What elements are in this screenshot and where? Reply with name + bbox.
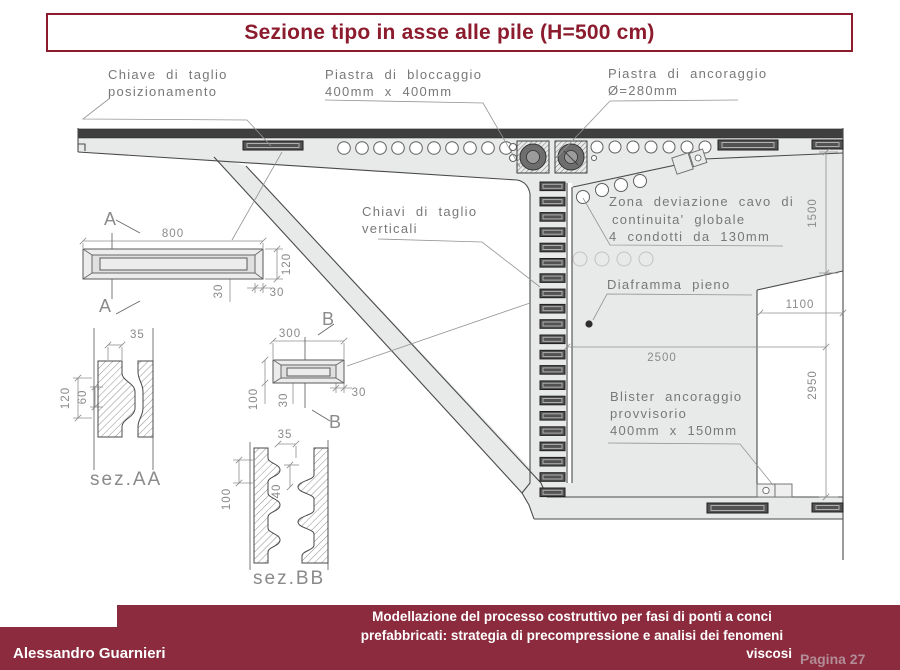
label-diaframma: Diaframma pieno — [607, 277, 731, 292]
dim-300: 300 — [279, 328, 301, 340]
page-number: Pagina 27 — [800, 651, 865, 667]
label-piastra-ancoraggio: Ø=280mm — [608, 83, 678, 98]
section-mark-b: B — [329, 412, 341, 432]
label-chiavi-verticali: Chiavi di taglio — [362, 204, 477, 219]
vertical-shear-keys — [540, 182, 565, 497]
dim-800: 800 — [162, 228, 184, 240]
section-BB-profiles — [250, 440, 328, 570]
label-chiave-taglio: posizionamento — [108, 84, 217, 99]
label-zona-deviazione: continuita' globale — [612, 212, 745, 227]
dim-120: 120 — [60, 387, 72, 409]
dim-2950: 2950 — [807, 370, 819, 400]
footer-author: Alessandro Guarnieri — [13, 645, 166, 662]
label-piastra-bloccaggio: Piastra di bloccaggio — [325, 67, 482, 82]
dim-1100: 1100 — [786, 299, 815, 311]
label-blister: Blister ancoraggio — [610, 389, 742, 404]
footer-title-line: viscosi — [352, 645, 792, 664]
dim-35: 35 — [278, 429, 293, 441]
dim-30: 30 — [278, 393, 290, 408]
dim-2500: 2500 — [647, 352, 677, 364]
label-chiave-taglio: Chiave di taglio — [108, 67, 228, 82]
footer-title-line: Modellazione del processo costruttivo pe… — [352, 608, 792, 627]
label-chiavi-verticali: verticali — [362, 221, 418, 236]
technical-drawing: Chiave di taglio posizionamento Piastra … — [0, 0, 900, 600]
blister-block — [757, 484, 792, 497]
dim-40: 40 — [271, 484, 283, 499]
label-zona-deviazione: Zona deviazione cavo di — [609, 194, 794, 209]
dim-60: 60 — [77, 390, 89, 405]
girder-section-body — [78, 128, 843, 519]
deck-top-band — [78, 129, 843, 138]
dim-100: 100 — [221, 488, 233, 510]
dim-30: 30 — [352, 387, 367, 399]
dim-120: 120 — [281, 253, 293, 275]
label-piastra-bloccaggio: 400mm x 400mm — [325, 84, 452, 99]
dim-30: 30 — [270, 287, 285, 299]
dim-35: 35 — [130, 329, 145, 341]
diaframma-leader-dot — [585, 320, 592, 327]
label-blister: 400mm x 150mm — [610, 423, 737, 438]
section-AA-profiles — [94, 328, 153, 470]
blocking-plate — [517, 141, 549, 173]
dim-1500: 1500 — [807, 198, 819, 228]
section-mark-b: B — [322, 309, 334, 329]
small-duct-circle — [510, 144, 517, 151]
label-sez-aa: sez.AA — [90, 469, 162, 490]
section-mark-a: A — [104, 209, 116, 229]
label-blister: provvisorio — [610, 406, 687, 421]
footer-presentation-title: Modellazione del processo costruttivo pe… — [352, 608, 792, 664]
label-piastra-ancoraggio: Piastra di ancoraggio — [608, 66, 767, 81]
dim-100: 100 — [248, 388, 260, 410]
small-duct-circle — [592, 156, 597, 161]
footer-title-line: prefabbricati: strategia di precompressi… — [352, 627, 792, 646]
label-sez-bb: sez.BB — [253, 568, 325, 589]
label-zona-deviazione: 4 condotti da 130mm — [609, 229, 770, 244]
detail-key-300 — [273, 360, 344, 383]
anchorage-plate — [555, 141, 587, 173]
dim-30: 30 — [213, 284, 225, 299]
section-mark-a: A — [99, 296, 111, 316]
detail-key-800 — [83, 249, 263, 279]
